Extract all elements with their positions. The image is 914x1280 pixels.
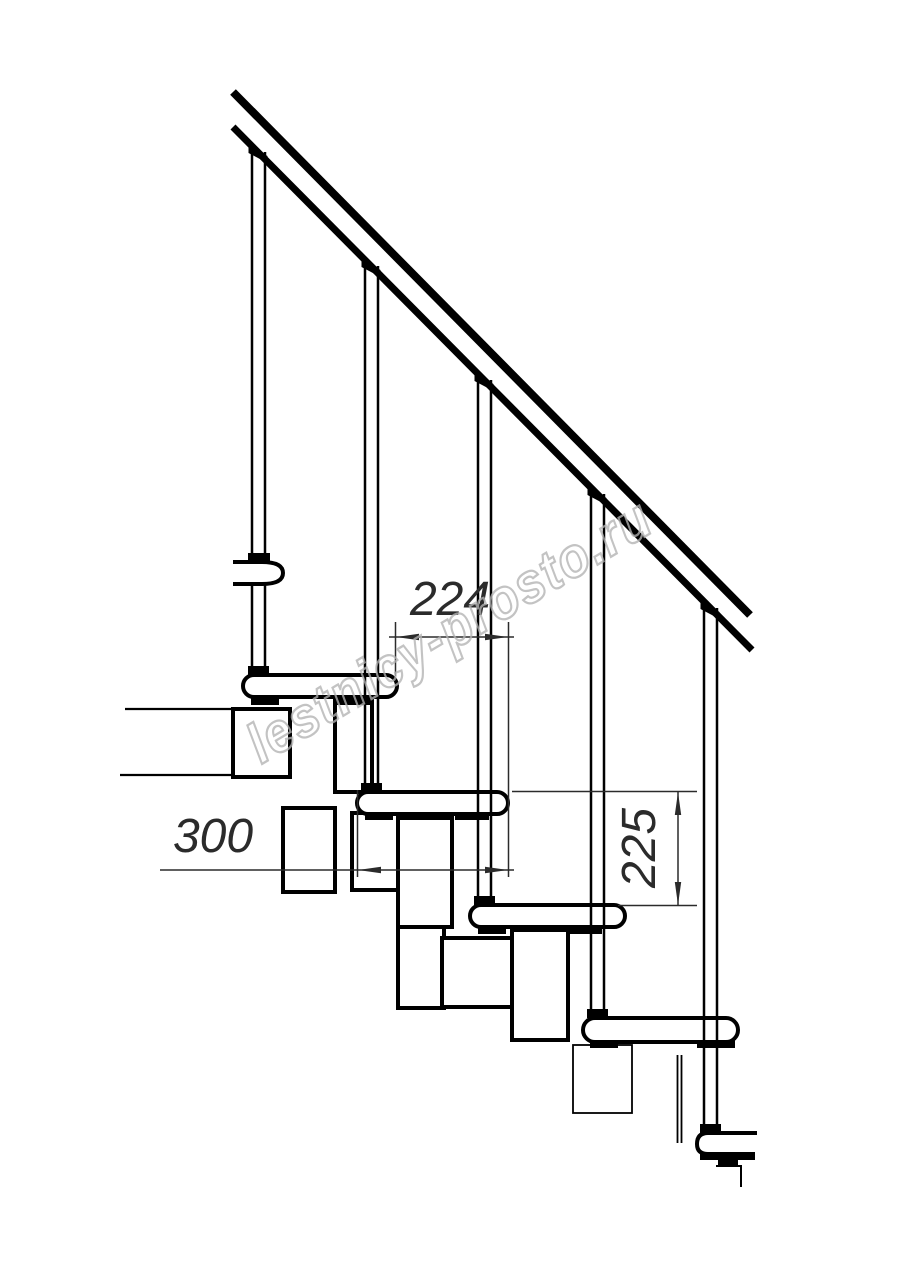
module-box	[512, 930, 568, 1040]
step-bracket	[455, 812, 489, 820]
dimension-label-rise: 225	[613, 808, 666, 889]
step-bracket	[590, 1040, 618, 1048]
watermark: lestnicy-prosto.ru	[235, 486, 663, 775]
module-box	[352, 813, 403, 890]
step-bracket	[700, 1152, 755, 1160]
module-box-thin	[573, 1045, 632, 1113]
treads	[243, 675, 757, 1154]
handrail	[233, 92, 752, 650]
baluster-foot	[248, 666, 269, 675]
step-bracket	[718, 1160, 738, 1166]
baluster-1	[252, 152, 265, 675]
module-box	[283, 808, 335, 892]
step-2	[357, 792, 508, 814]
dimension-label-tread: 300	[173, 810, 253, 863]
module-box	[398, 927, 444, 1008]
step-bracket	[478, 926, 506, 934]
fittings	[248, 146, 755, 1166]
staircase-drawing: 224 300 225 lestnicy-prosto.ru	[0, 0, 914, 1280]
step-4	[583, 1018, 738, 1042]
arrowhead-down-icon	[675, 882, 681, 905]
step-5-stub	[697, 1133, 757, 1154]
module-box	[398, 818, 452, 927]
baluster-collar	[248, 553, 270, 562]
step-bracket	[365, 812, 393, 820]
arrowhead-right-icon	[485, 867, 508, 873]
step-bracket	[568, 926, 602, 934]
step-upper-stub	[233, 562, 283, 584]
arrowhead-up-icon	[675, 792, 681, 815]
module-line-thin	[716, 1166, 741, 1187]
step-3	[470, 905, 625, 927]
module-box	[442, 938, 517, 1007]
